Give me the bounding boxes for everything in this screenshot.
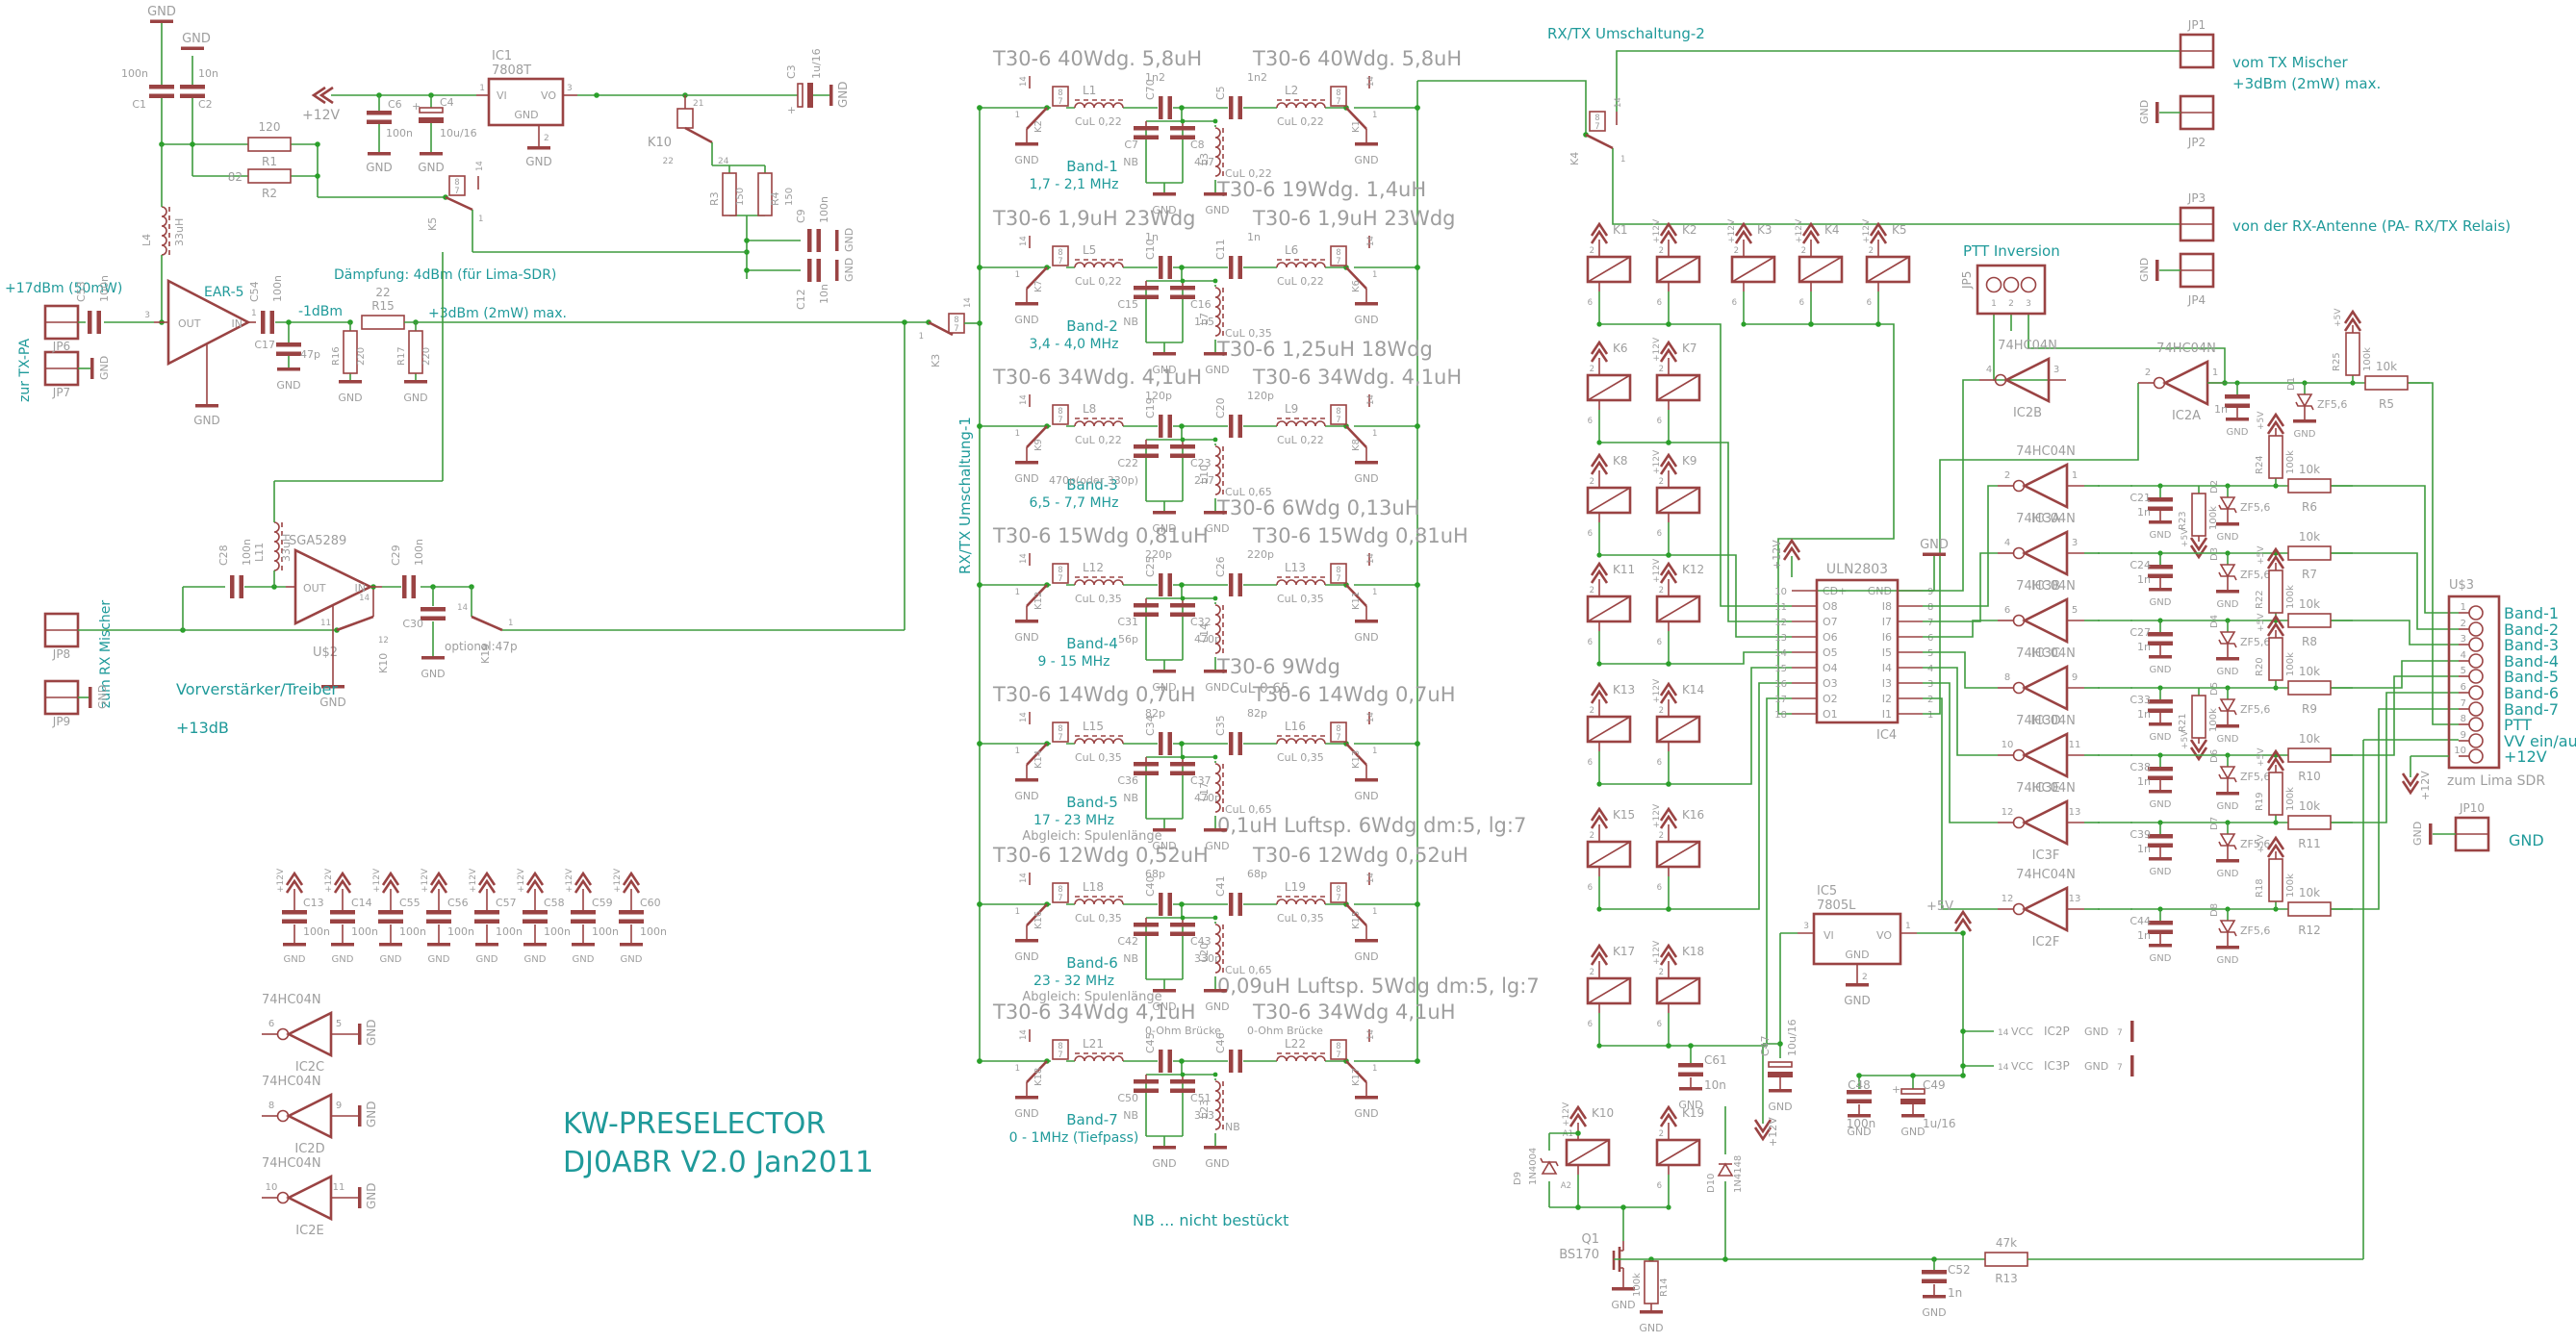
shunt-cap-b-name: C8 [1190,139,1205,151]
filter-title-mid: T30-6 1,25uH 18Wdg [1216,338,1433,361]
filter-title-right: T30-6 40Wdg. 5,8uH [1252,47,1462,70]
c4-value: 10u/16 [440,127,477,139]
q1-name: Q1 [1581,1232,1599,1247]
c54-value: 100n [271,275,284,302]
schematic-title-2: DJ0ABR V2.0 Jan2011 [563,1146,874,1179]
relay-contact-left: 8 7 14 1 K14 GND [1014,712,1068,802]
label: 12 [1774,618,1787,628]
label: 15 [1774,664,1787,674]
p12-label: +12V [1767,1117,1779,1147]
relay-coil: K1 2 6 [1588,223,1630,327]
decoupling-cap: +12V GND C56 100n [421,868,474,965]
coil-pin-top: A1 [1563,1129,1573,1139]
ic5-vo: VO [1876,929,1892,942]
inverter-in-pin: 1 [2072,470,2078,481]
zener-name: D4 [2209,615,2220,628]
zum-lima-sdr: zum Lima SDR [2447,773,2545,789]
inductor-right-name: L6 [1285,243,1298,257]
r1-name: R1 [262,155,277,168]
coil-pin-bottom: 6 [1588,1020,1593,1029]
jp3-label: JP3 [2187,191,2206,205]
inverter-out-pin: 12 [2002,807,2014,818]
inductor-right-name: L16 [1285,720,1306,733]
gnd-label: GND [1014,790,1038,802]
label: O7 [1823,616,1838,628]
label: 10 [1774,587,1787,597]
shunt-inductor-name: L10 [1198,465,1211,484]
p12-label: +12V [1771,540,1783,570]
zener-name: D5 [2209,682,2220,696]
pin-number: 5 [2461,666,2466,676]
pin-number: 10 [2454,746,2466,756]
coil-pin-bottom: 6 [1588,298,1593,308]
relay-coil: +12V K3 2 6 [1727,218,1774,327]
zener-name: D2 [2209,480,2220,494]
inductor-right-name: L9 [1285,402,1298,416]
gnd-label: GND [1920,538,1949,552]
ear5-out: OUT [178,317,201,330]
label: 11 [1774,602,1787,613]
filter-title-right: T30-6 14Wdg 0,7uH [1252,683,1455,706]
band-label: Band-2 [1066,317,1117,335]
pin-14: 14 [1019,394,1029,405]
uln-ref: IC4 [1876,728,1897,743]
label: O1 [1823,708,1838,721]
series-cap-left-value: 1n2 [1145,71,1165,84]
gnd-label: GND [1847,1126,1871,1138]
pin-14: 14 [1614,97,1623,108]
filter-row: T30-6 34Wdg. 4,1uH T30-6 34Wdg. 4,1uH T3… [977,366,1462,535]
jp5-pin3: 3 [2026,299,2031,309]
inverter-gate: 74HC04N 12 13 IC3F [1998,781,2084,863]
wire [1613,148,2181,224]
pin-1: 1 [1372,588,1377,597]
d10-value: 1N4148 [1733,1155,1744,1193]
cap-value: 100n [447,925,474,938]
pin-number: 3 [2461,634,2466,645]
pin-7: 7 [1058,1051,1062,1060]
series-cap-right-value: 120p [1247,390,1274,402]
gnd-label: GND [2217,599,2239,610]
c3-value: 1u/16 [810,48,823,79]
r3-name: R3 [708,191,721,206]
cap-name: C60 [640,897,661,909]
label: I2 [1882,693,1892,705]
pin-1: 1 [919,332,924,342]
filter-title-left: T30-6 34Wdg 4,1uH [992,1000,1195,1024]
c49-value: 1u/16 [1923,1117,1956,1130]
label: O6 [1823,631,1838,644]
cap-name: C33 [2130,694,2151,706]
label: 18 [1774,710,1787,721]
inverter-out-pin: 4 [1986,365,1992,375]
pin-7: 7 [1058,97,1062,107]
pin-number: 7 [2461,698,2466,709]
gnd-label: GND [380,954,402,965]
gnd-label: GND [1205,522,1229,535]
pullup-value: 100k [2285,585,2296,609]
wire [1599,443,1792,621]
shunt-cap-a-value: NB [1123,1109,1138,1122]
c53-value: 100n [98,275,111,302]
gnd-label: GND [1844,994,1871,1007]
ic1-ref: IC1 [492,49,512,63]
coil-pin-bottom: 6 [1588,529,1593,539]
pin-number: 4 [2461,650,2466,661]
inverter-ref: IC2F [2032,935,2060,950]
r16-name: R16 [331,346,342,366]
p12-label: +12V [1727,218,1737,243]
inductor-left-value: CuL 0,22 [1075,115,1122,128]
zener-name: D3 [2209,547,2220,561]
filter-title-mid: 0,09uH Luftsp. 5Wdg dm:5, lg:7 [1217,975,1540,998]
pulldown-resistor: +5V R23 100k [2178,486,2219,557]
k19-contact: 14 1 K19 [457,319,907,664]
coil-pin-bottom: 6 [1867,298,1872,308]
decoupling-cap: +12V GND C13 100n [276,868,330,965]
label: I4 [1882,662,1892,674]
pin-1: 1 [1015,1064,1020,1074]
gnd-label: GND [2138,100,2151,124]
c28-name: C28 [217,544,230,566]
gnd-label: GND [2150,732,2172,743]
pin-14: 14 [963,297,973,308]
filter-title-left: T30-6 14Wdg 0,7uH [992,683,1195,706]
series-cap-right-value: 220p [1247,548,1274,561]
gnd-label: GND [98,356,111,380]
shunt-cap-b-name: C16 [1190,298,1211,311]
gnd-label: GND [2217,955,2239,966]
inverter-part: 74HC04N [2016,579,2076,594]
inverter-part: 74HC04N [2016,714,2076,728]
coil-pin-bottom: 6 [1588,417,1593,426]
jp4-label: JP4 [2187,293,2206,307]
r17-value: 220 [421,347,432,366]
d9-name: D9 [1513,1172,1523,1185]
inverter-ref: IC2E [295,1224,323,1238]
relay-coil: K19 2 6 [1657,1106,1705,1210]
gnd-label: GND [1014,314,1038,326]
inductor-left-name: L12 [1083,561,1104,574]
coil-pin-bottom: 6 [1657,1020,1662,1029]
power-pins: 14 VCC IC2P GND 7 14 VCC IC3P GND 7 [1960,1021,2133,1076]
inductor-left-value: CuL 0,22 [1075,275,1122,288]
ic5-part: 7805L [1817,899,1856,913]
relay-coil: K17 2 6 [1588,945,1636,1049]
cap-value: 100n [544,925,571,938]
ic5-vi: VI [1824,929,1834,942]
c9-name: C9 [795,209,807,223]
d9-value: 1N4004 [1528,1148,1539,1185]
pin-1: 1 [508,619,513,628]
pin-14: 14 [1019,553,1029,564]
relay-coil: +12V K14 2 6 [1652,678,1704,787]
pullup-value: 100k [2285,450,2296,474]
inverter-gate: 74HC04N 12 13 IC2F [1998,868,2084,950]
schematic-canvas: 8 7 14 1 GND GND GND [0,0,2576,1342]
relay-name-left: K14 [1033,750,1044,769]
gnd-label: GND [403,392,427,404]
k5-contact: 8 7 14 1 K5 [426,161,747,252]
cap-value: 100n [303,925,330,938]
inverter-in-pin: 13 [2069,807,2081,818]
cap-name: C13 [303,897,324,909]
filter-title-left: T30-6 34Wdg. 4,1uH [992,366,1202,389]
pin-number: 8 [2461,714,2466,724]
label: 5 [1927,648,1933,659]
gnd-label: GND [476,954,498,965]
band-range: 17 - 23 MHz [1033,813,1114,828]
wire [1417,81,1586,135]
gnd-label: GND [1354,790,1378,802]
pullup-name: R19 [2255,792,2265,811]
band-range: 0 - 1MHz (Tiefpass) [1009,1130,1139,1146]
ic1-vi: VI [497,89,507,102]
uln2803-block: ULN2803 IC4 +12V GND [1771,538,1949,743]
rxtx-umschaltung-2: RX/TX Umschaltung-2 [1547,25,1705,42]
ic5-block: IC5 7805L VI VO GND 3 1 2 GND +5V +12V C… [1755,884,1971,1147]
filter-title-right: T30-6 12Wdg 0,52uH [1252,844,1468,867]
series-r-value: 10k [2376,360,2397,373]
filter-row: T30-6 34Wdg 4,1uH T30-6 34Wdg 4,1uH Band… [977,1000,1455,1170]
series-r-name: R8 [2302,635,2317,648]
shunt-cap-a-value: 56p [1118,633,1138,646]
relay-contact-right: 8 7 14 1 K6 GND [1331,236,1379,326]
label: 1 [1927,710,1933,721]
relay-coil-name: K1 [1613,223,1628,237]
plus-mark: + [1892,1083,1900,1096]
gnd-label: GND [1768,1101,1792,1113]
series-cap-right-value: 68p [1247,868,1267,880]
zener-value: ZF5,6 [2240,924,2270,937]
vom-tx-level: +3dBm (2mW) max. [2232,75,2381,92]
gnd-label: GND [421,668,445,680]
zener-value: ZF5,6 [2240,501,2270,514]
label: I7 [1882,616,1892,628]
p5-label: +5V [2257,834,2266,853]
wire [1817,380,1979,591]
coil-pin-top: 2 [1659,586,1664,595]
relay-coil: K11 2 6 [1588,563,1636,667]
pullup-resistor: +5V R18 100k [2255,834,2296,909]
coil-pin-top: 2 [1590,706,1594,716]
p5-label: +5V [2257,613,2266,632]
c61-value: 10n [1704,1078,1726,1092]
c54-name: C54 [248,281,261,302]
shunt-inductor-name: L17 [1198,782,1211,801]
component-layer: T30-6 40Wdg. 5,8uH T30-6 40Wdg. 5,8uH T3… [262,47,2576,1238]
coil-pin-top: 2 [1869,246,1874,256]
pin-7: 7 [1058,257,1062,266]
pin-14: 14 [1366,712,1376,722]
cap-value: 100n [399,925,426,938]
inverter-ref: IC2D [294,1142,324,1156]
gnd-label: GND [2150,953,2172,964]
inverter-out-pin: 10 [2002,740,2014,750]
p5-label: +5V [1926,899,1953,914]
gnd-label: GND [1900,1126,1925,1138]
inductor-right-value: CuL 0,35 [1277,912,1324,924]
relay-coil: +12V K9 2 6 [1652,449,1699,558]
series-cap-right-name: C26 [1214,556,1227,577]
vcc-pin: 14 [1998,1063,2009,1073]
shunt-inductor-value: CuL 0,65 [1225,486,1272,498]
p13db: +13dB [176,719,229,737]
gnd-label: GND [2150,867,2172,877]
pin-14: 14 [1366,1029,1376,1040]
relay-contact-left: 8 7 14 1 K12 GND [1014,553,1068,644]
gnd-label: GND [2217,734,2239,745]
gnd-label: GND [1205,204,1229,216]
shunt-inductor-value: CuL 0,22 [1225,167,1272,180]
r15-name: R15 [371,299,395,313]
gnd-label: GND [1014,472,1038,485]
input-protection-row: GND 1n GND D1 ZF5,6 +5V R25 100k 10k R5 [2207,308,2430,440]
p12-label: +12V [372,868,382,893]
coil-pin-top: 2 [1801,246,1806,256]
shunt-inductor-name: L23 [1198,1100,1211,1119]
pin-7: 7 [1336,574,1340,584]
gnd-label: GND [2084,1025,2108,1038]
inverter-part: 74HC04N [2016,512,2076,526]
ic5-ref: IC5 [1817,884,1837,899]
inductor-left-name: L21 [1083,1037,1104,1051]
connector-pin: 1 Band-1 [2459,602,2559,622]
uln-part: ULN2803 [1826,562,1888,577]
band-label: Band-6 [1066,954,1117,972]
relay-coil-name: K16 [1682,808,1704,822]
relay-coil: +12V K7 2 6 [1652,337,1699,445]
zener-name: D6 [2209,749,2220,763]
relay-name-left: K16 [1033,911,1044,929]
inductor-right-value: CuL 0,22 [1277,434,1324,446]
cap-value: 1n [2137,775,2151,788]
band-label: Band-7 [1066,1111,1117,1128]
p12-label: +12V [1795,218,1804,243]
c52-name: C52 [1948,1263,1971,1277]
plus-mark: + [787,104,796,116]
gnd-label: GND [2150,799,2172,810]
pin-14: 14 [359,594,370,603]
p3dbm: +3dBm (2mW) max. [428,306,567,321]
gnd-label: GND [1354,472,1378,485]
inverter-in-pin: 3 [2072,538,2078,548]
relay-coil-name: K14 [1682,683,1704,696]
p12-label: +12V [565,868,574,893]
relay-coil-name: K18 [1682,945,1704,958]
c28-value: 100n [241,539,253,566]
inverter-ref: IC2A [2172,409,2201,423]
pin-7: 7 [1336,416,1340,425]
relay-coil-name: K2 [1682,223,1697,237]
c52-value: 1n [1948,1286,1962,1300]
filter-title-mid: 0,1uH Luftsp. 6Wdg dm:5, lg:7 [1217,814,1526,837]
ic1-vo: VO [541,89,556,102]
relay-coil-name: K11 [1613,563,1635,576]
r16-value: 220 [356,347,367,366]
gnd-label: GND [96,685,109,709]
inductor-right-value: CuL 0,22 [1277,115,1324,128]
p12-label: +12V [1652,449,1662,474]
inductor-left-value: CuL 0,35 [1075,912,1122,924]
gnd-label: GND [338,392,362,404]
series-cap-right-name: C20 [1214,397,1227,418]
wire [1923,668,1998,755]
label: O5 [1823,646,1838,659]
gnd-label: GND [525,155,552,168]
pin-14: 14 [1366,553,1376,564]
pin-1: 1 [1372,1064,1377,1074]
inverter-part: 74HC04N [1998,339,2057,353]
relay-name-left: K2 [1033,120,1044,133]
pin-7: 7 [1058,574,1062,584]
jp9-label: JP9 [52,715,70,728]
shunt-cap-a-name: C36 [1117,774,1138,787]
relay-contact-left: 8 7 14 1 K18 GND [1014,1029,1068,1120]
shunt-inductor-value: CuL 0,65 [1225,803,1272,816]
sga-in: IN [355,582,366,595]
inverter-part: 74HC04N [262,1156,321,1171]
pullup-name: R18 [2255,878,2265,898]
vcc-label: VCC [2011,1060,2033,1073]
plus-mark: + [412,100,421,113]
label: 8 [1927,602,1933,613]
r4-name: R4 [769,191,781,206]
shunt-cap-a-value: NB [1123,792,1138,804]
von-rx-antenne: von der RX-Antenne (PA- RX/TX Relais) [2232,217,2511,235]
series-cap-left-value: 220p [1145,548,1172,561]
inverter-in-pin: 1 [2212,367,2218,378]
gnd-label: GND [524,954,547,965]
pin-1: 1 [251,309,257,318]
k4-contact: 8 7 14 1 K4 [1569,97,1625,165]
coil-pin-bottom: 6 [1657,298,1662,308]
cap-value: 100n [640,925,667,938]
c12-value: 10n [818,284,830,304]
series-cap-left-value: 120p [1145,390,1172,402]
relay-coil-name: K15 [1613,808,1635,822]
pin-11: 11 [320,619,331,628]
pin-1: 1 [1015,747,1020,756]
inverter-in-pin: 11 [2069,740,2081,750]
ear5-name: EAR-5 [204,285,244,300]
series-cap-left-value: 1n [1145,231,1159,243]
gnd-label: GND [1678,1099,1702,1111]
pin-22: 22 [663,157,674,166]
cap-name: C21 [2130,492,2151,504]
l4-value: 33uH [173,218,186,246]
r14-name: R14 [1659,1278,1670,1297]
pin-1: 1 [479,84,485,93]
pin-1: 1 [1015,111,1020,120]
p12-label: +12V [1562,1101,1571,1127]
relay-name-left: K9 [1033,439,1044,451]
pin-number: 9 [2461,730,2466,741]
jp5-block: PTT Inversion 1 2 3 JP5 [1960,242,2060,314]
label: 4 [1927,664,1933,674]
inverter-out-pin: 2 [2145,367,2151,378]
filter-title-left: T30-6 1,9uH 23Wdg [992,207,1195,230]
inductor-left-name: L5 [1083,243,1096,257]
wire [1923,383,2138,714]
ear5-block: +17dBm (50mW) zur TX-PA JP6 JP7 GND C53 … [5,267,905,427]
series-cap-left-value: 0-Ohm Brücke [1145,1025,1221,1037]
relay-coil: +12V K10 A1 A2 [1561,1101,1614,1210]
relay-contact-right: 8 7 14 1 K17 GND [1331,1029,1379,1120]
inverter-part: 74HC04N [262,1075,321,1089]
pin-7: 7 [954,324,958,334]
series-r-value: 10k [2299,886,2320,899]
